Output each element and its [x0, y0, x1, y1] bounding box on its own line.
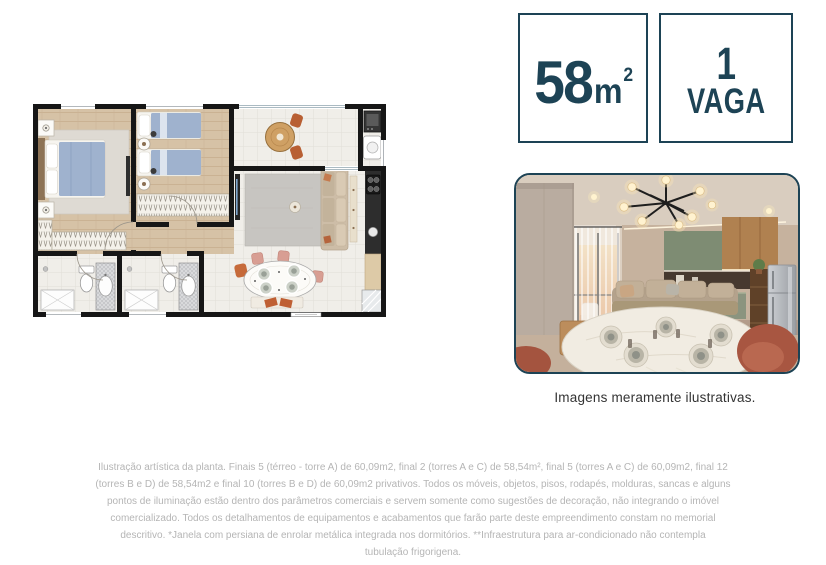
interior-photo-svg — [516, 175, 798, 372]
disclaimer-line: Ilustração artística da planta. Finais 5… — [63, 459, 763, 476]
disclaimer-line: comercializado. Todos os detalhamentos d… — [63, 510, 763, 527]
page: 58m2 1 VAGA — [0, 0, 826, 565]
kitchen — [362, 171, 382, 312]
area-unit: m — [594, 72, 623, 111]
disclaimer-line: tubulação frigorigena. — [63, 544, 763, 561]
interior-photo — [514, 173, 800, 374]
parking-badge-text: 1 VAGA — [687, 43, 765, 119]
floor-plan-illustration — [33, 104, 386, 317]
disclaimer-line: (torres B e D) de 58,54m2 e final 10 (to… — [63, 476, 763, 493]
disclaimer-line: pontos de iluminação estão dentro dos pa… — [63, 493, 763, 510]
floor-plan-svg — [33, 104, 386, 317]
photo-caption: Imagens meramente ilustrativas. — [494, 390, 816, 405]
living-room — [235, 168, 357, 250]
parking-label: VAGA — [687, 84, 765, 119]
parking-badge: 1 VAGA — [659, 13, 793, 143]
disclaimer: Ilustração artística da planta. Finais 5… — [63, 459, 763, 561]
area-badge-text: 58m2 — [534, 48, 632, 117]
disclaimer-line: descritivo. *Janela com persiana de enro… — [63, 527, 763, 544]
area-value: 58 — [534, 49, 592, 116]
parking-value: 1 — [687, 43, 765, 84]
area-unit-sup: 2 — [623, 65, 633, 86]
area-badge: 58m2 — [518, 13, 648, 143]
